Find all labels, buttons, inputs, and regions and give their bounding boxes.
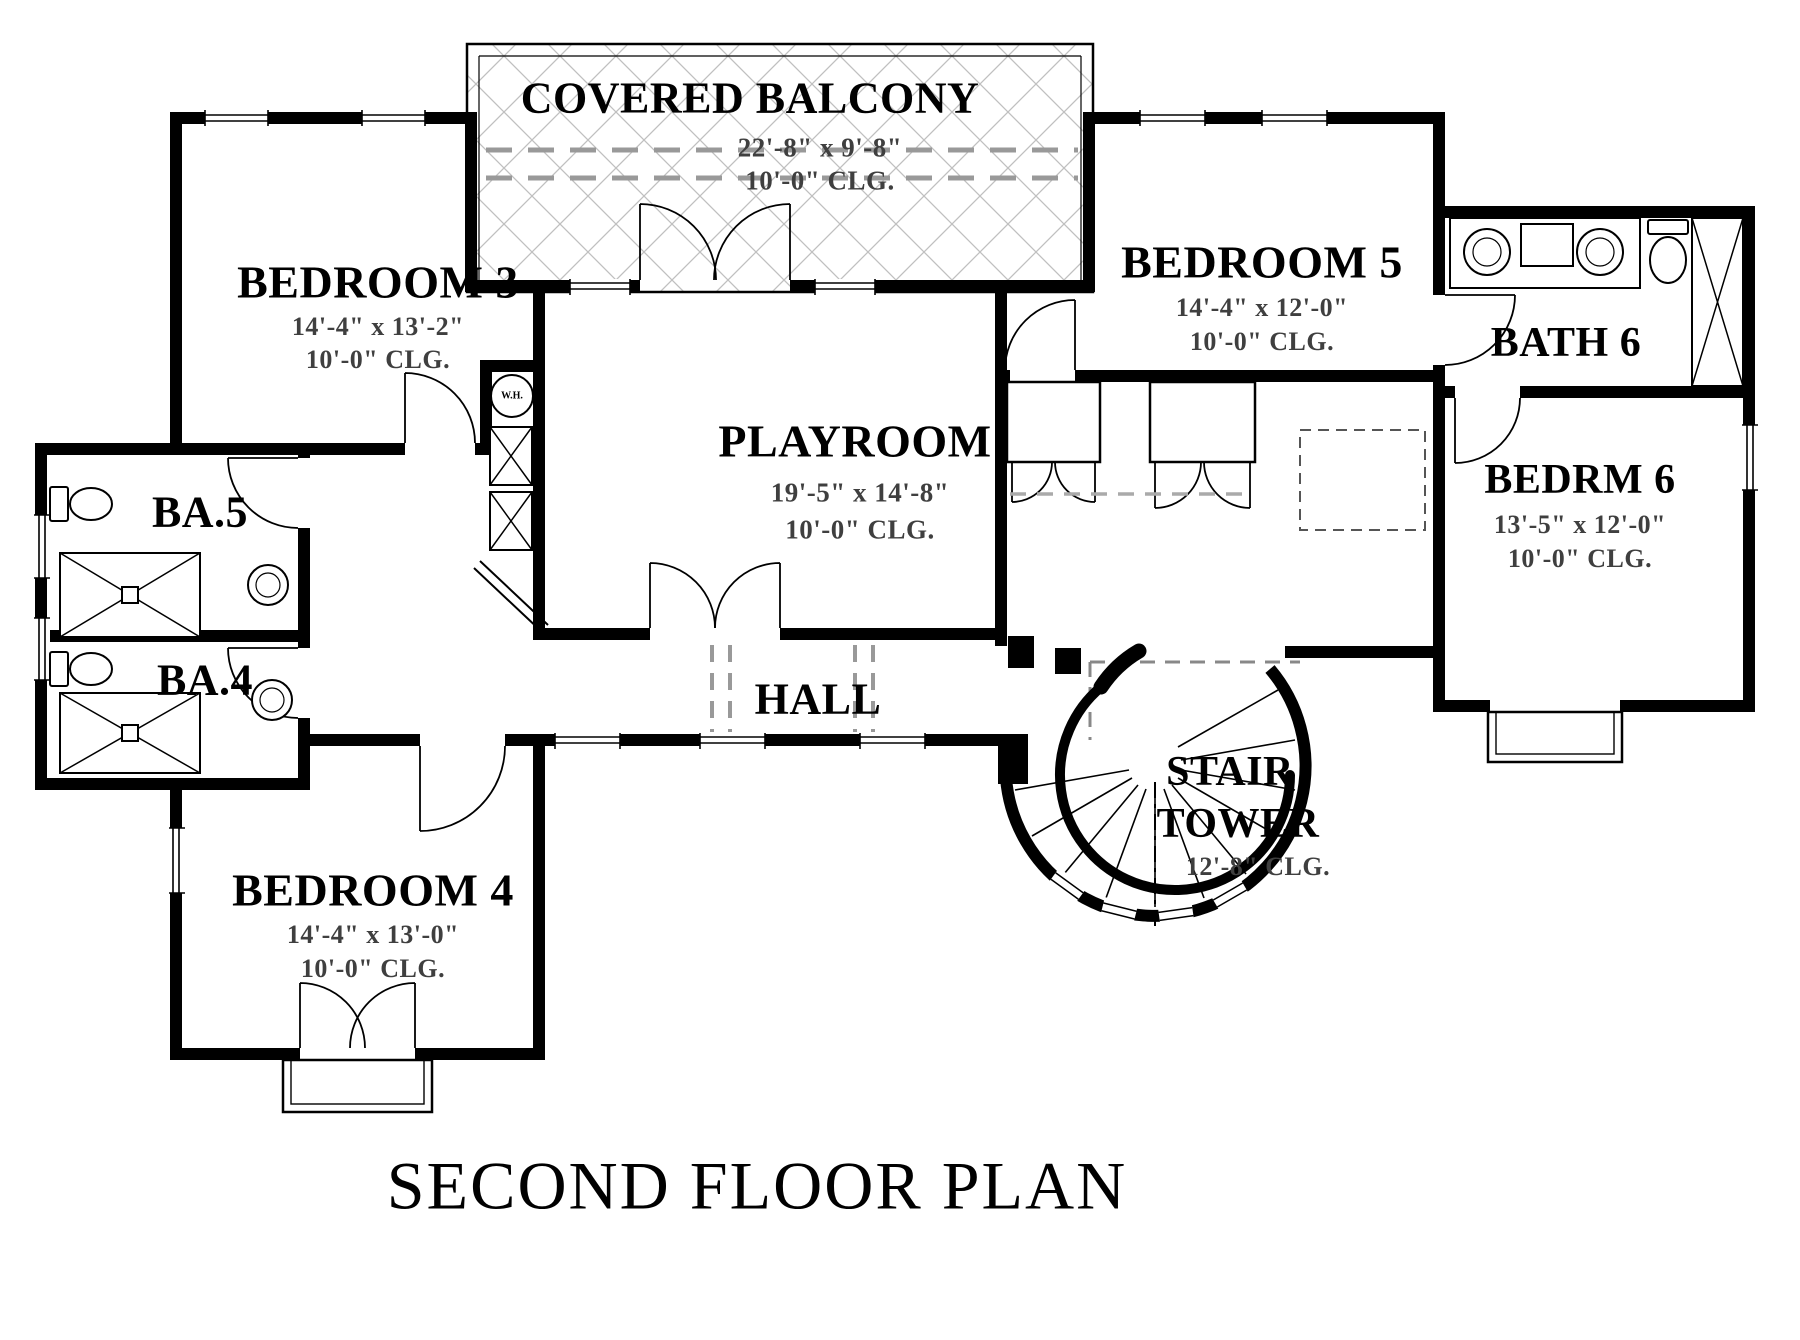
bedrm6-label: BEDRM 6 bbox=[1484, 456, 1675, 504]
bedrm6-dims: 13'-5" x 12'-0" bbox=[1494, 510, 1666, 540]
bedrm6-ceiling: 10'-0" CLG. bbox=[1508, 544, 1652, 574]
bedroom5-ceiling: 10'-0" CLG. bbox=[1190, 327, 1334, 357]
stair-tower-label-line2: TOWER bbox=[1157, 800, 1320, 848]
playroom-dims: 19'-5" x 14'-8" bbox=[771, 478, 949, 509]
bedroom4-dims: 14'-4" x 13'-0" bbox=[287, 920, 459, 950]
stair-tower-ceiling: 12'-8" CLG. bbox=[1186, 852, 1330, 882]
ba5-label: BA.5 bbox=[152, 487, 248, 538]
covered-balcony-dims: 22'-8" x 9'-8" bbox=[738, 133, 902, 164]
stair-tower-label-line1: STAIR bbox=[1166, 748, 1294, 796]
covered-balcony-label: COVERED BALCONY bbox=[521, 73, 980, 124]
bath6-label: BATH 6 bbox=[1491, 319, 1641, 367]
floor-plan-page: COVERED BALCONY 22'-8" x 9'-8" 10'-0" CL… bbox=[0, 0, 1800, 1340]
bedroom3-ceiling: 10'-0" CLG. bbox=[306, 345, 450, 375]
covered-balcony-ceiling: 10'-0" CLG. bbox=[745, 166, 895, 197]
bedroom3-dims: 14'-4" x 13'-2" bbox=[292, 312, 464, 342]
bedroom4-label: BEDROOM 4 bbox=[232, 864, 514, 917]
water-heater-label: W.H. bbox=[501, 391, 523, 402]
bedroom3-label: BEDROOM 3 bbox=[237, 256, 519, 309]
floor-plan-drawing bbox=[0, 0, 1800, 1340]
bedroom5-dims: 14'-4" x 12'-0" bbox=[1176, 293, 1348, 323]
bedroom4-ceiling: 10'-0" CLG. bbox=[301, 954, 445, 984]
hall-label: HALL bbox=[755, 674, 882, 725]
playroom-ceiling: 10'-0" CLG. bbox=[785, 515, 935, 546]
page-title: SECOND FLOOR PLAN bbox=[387, 1147, 1128, 1226]
ba4-label: BA.4 bbox=[157, 655, 253, 706]
bedroom5-label: BEDROOM 5 bbox=[1121, 236, 1403, 289]
playroom-label: PLAYROOM bbox=[718, 415, 991, 468]
